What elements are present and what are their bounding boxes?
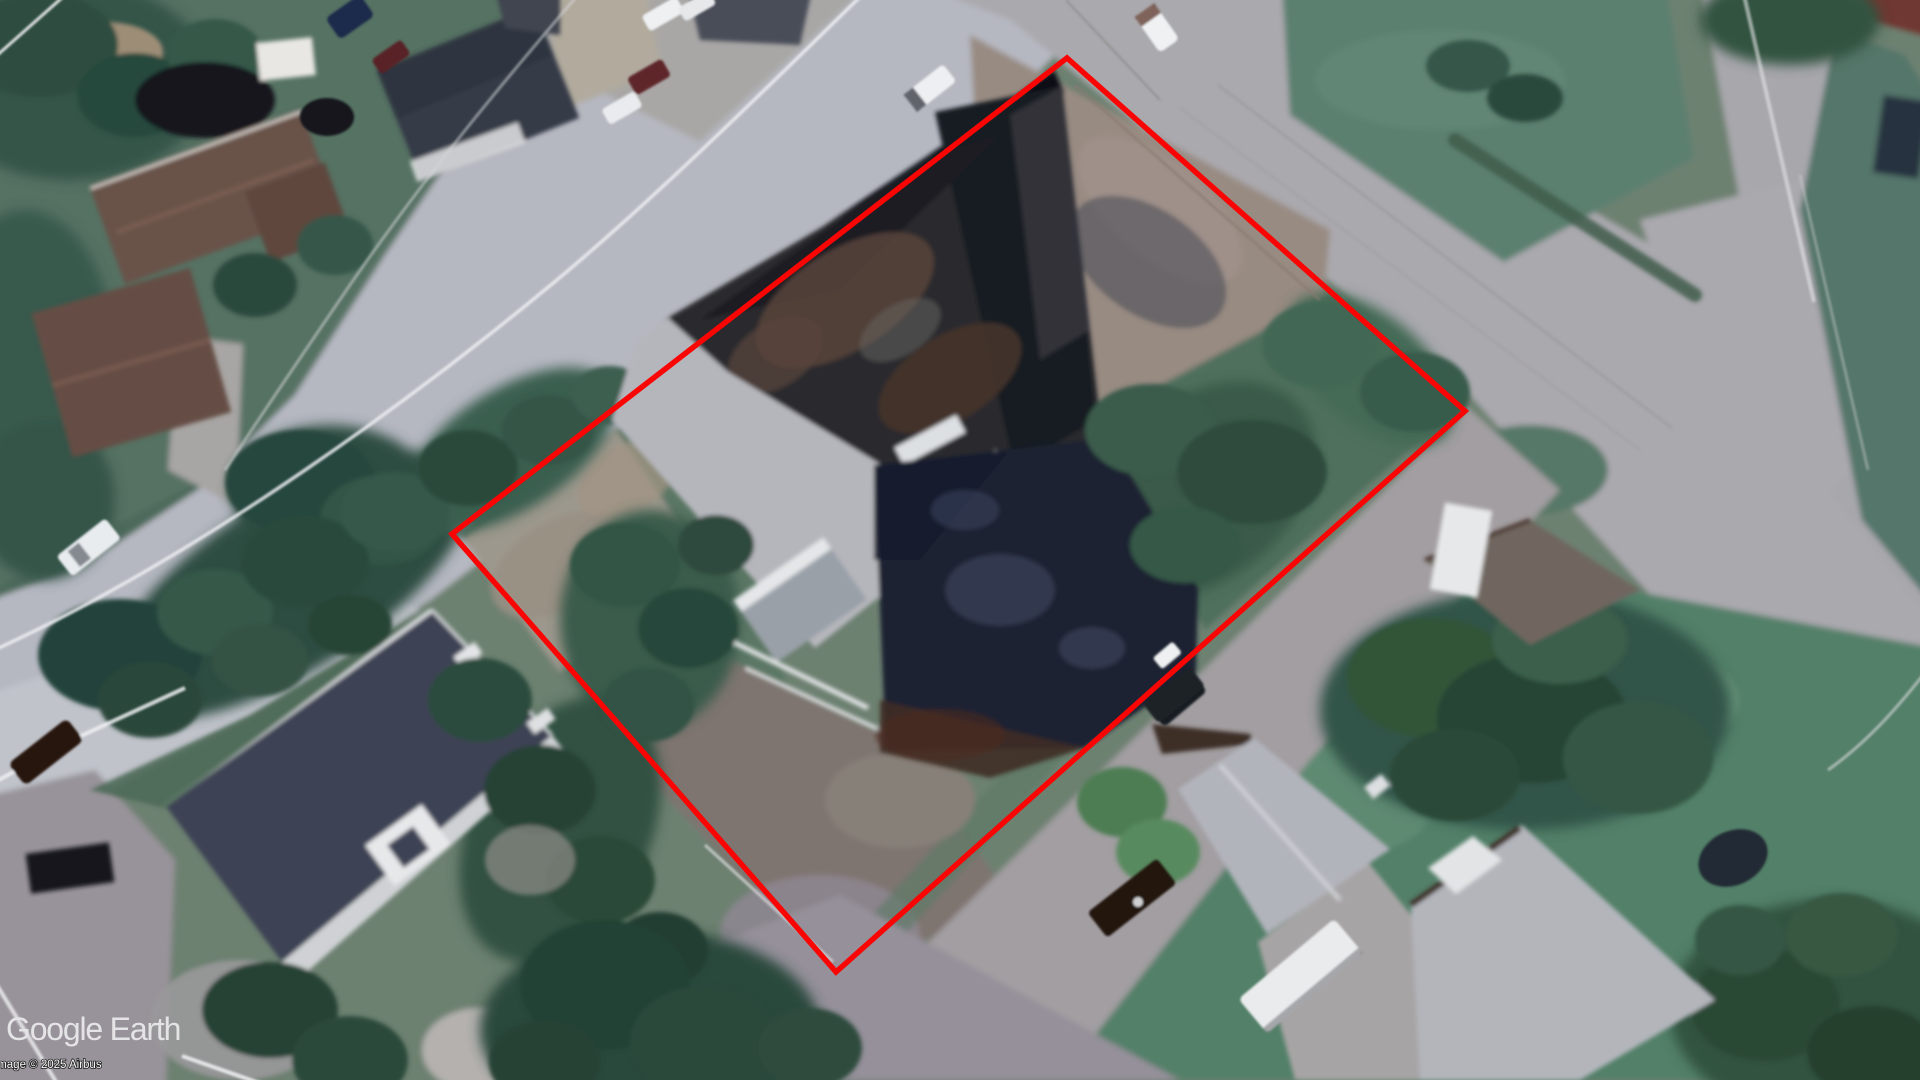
svg-text:Google Earth: Google Earth <box>6 1011 180 1047</box>
svg-text:Image © 2025 Airbus: Image © 2025 Airbus <box>0 1059 102 1071</box>
